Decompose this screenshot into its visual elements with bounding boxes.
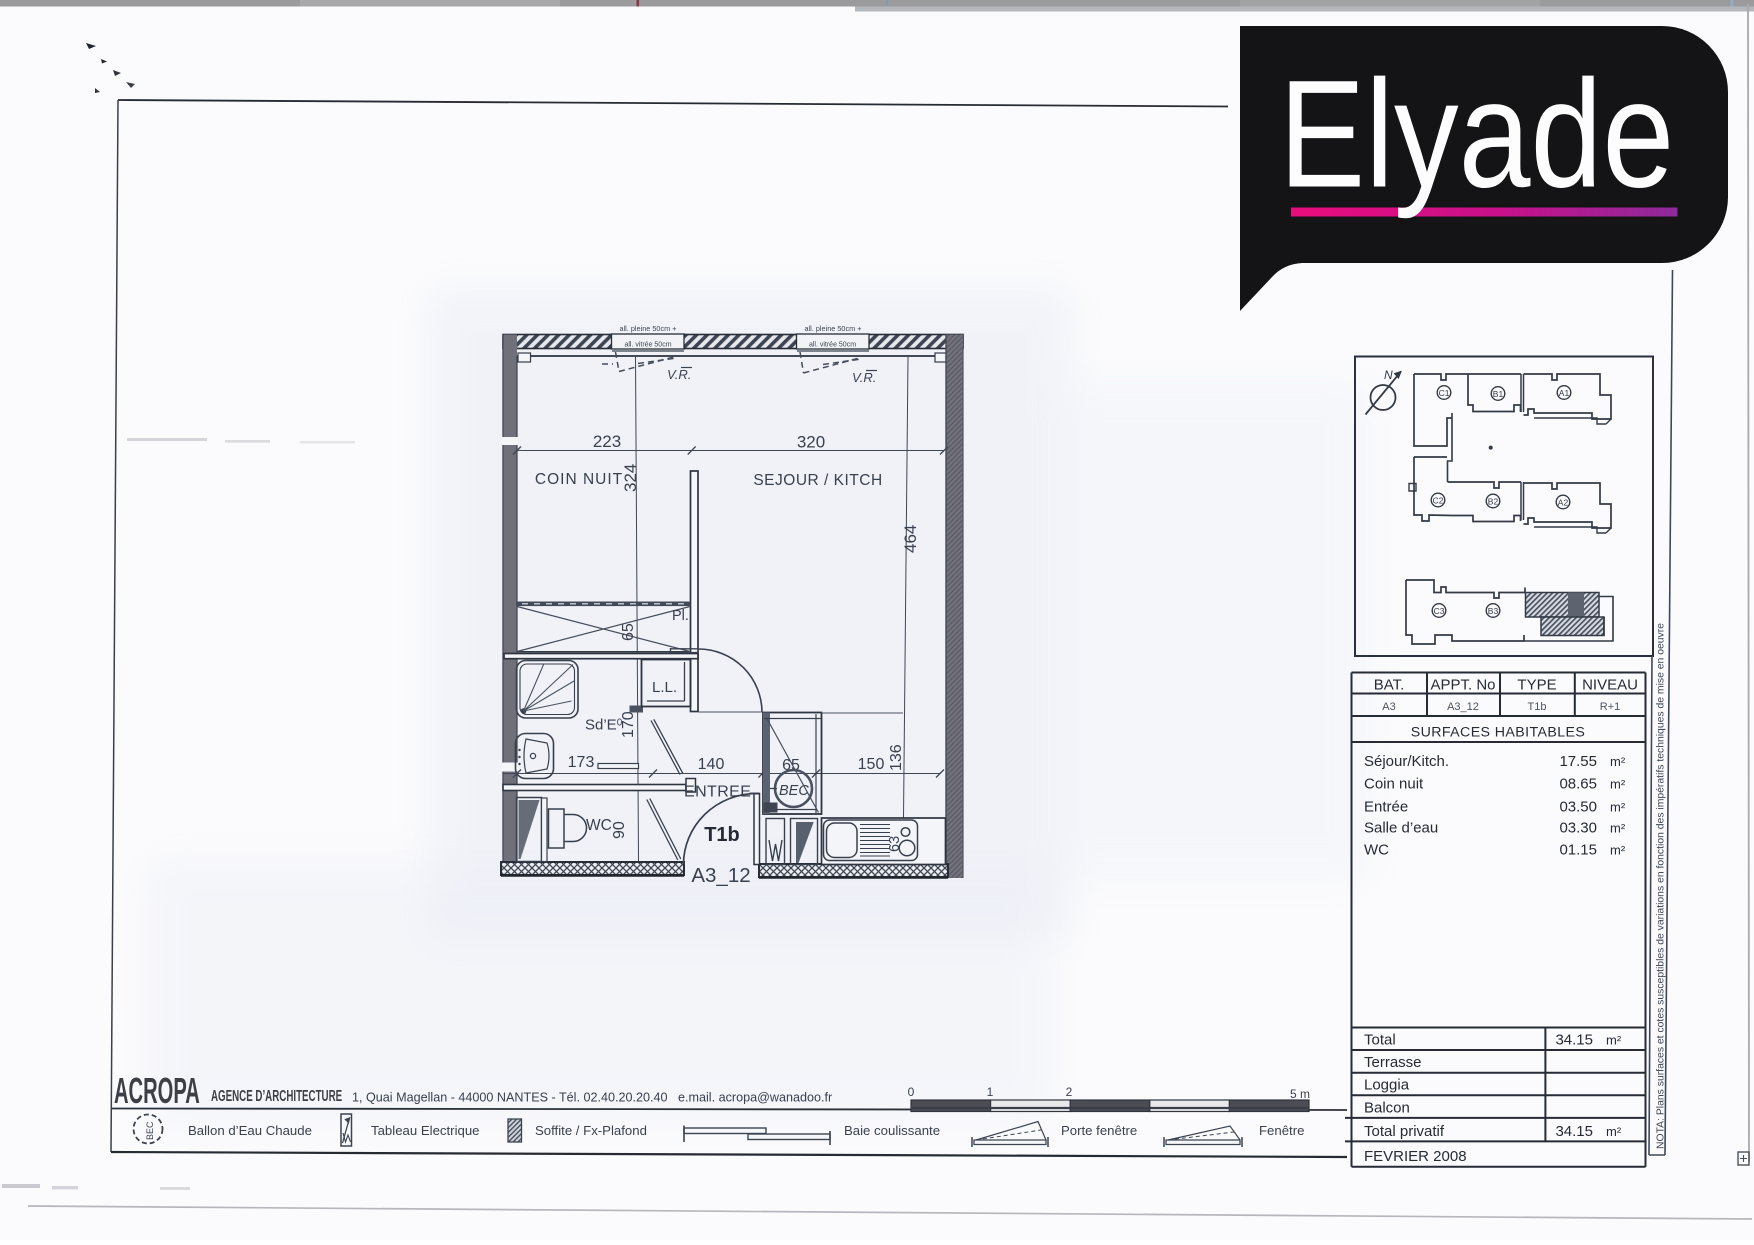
- svg-text:m²: m²: [1606, 1033, 1622, 1048]
- svg-text:320: 320: [797, 433, 825, 452]
- svg-text:34.15: 34.15: [1555, 1032, 1593, 1049]
- svg-text:APPT. No: APPT. No: [1430, 677, 1495, 694]
- svg-text:NOTA: Plans surfaces et cotes: NOTA: Plans surfaces et cotes susceptibl…: [1656, 623, 1667, 1149]
- svg-text:B1: B1: [1493, 389, 1504, 399]
- svg-text:V.R.: V.R.: [852, 370, 876, 385]
- svg-text:m²: m²: [1610, 821, 1626, 836]
- svg-text:136: 136: [888, 744, 905, 771]
- svg-text:Salle d’eau: Salle d’eau: [1364, 820, 1438, 837]
- svg-text:Porte fenêtre: Porte fenêtre: [1061, 1123, 1137, 1138]
- svg-text:B2: B2: [1488, 497, 1499, 507]
- svg-text:03.30: 03.30: [1559, 820, 1597, 837]
- svg-text:V.R.: V.R.: [667, 367, 691, 382]
- svg-text:ENTREE: ENTREE: [684, 784, 751, 801]
- svg-text:m²: m²: [1610, 843, 1626, 858]
- svg-text:FEVRIER 2008: FEVRIER 2008: [1364, 1148, 1467, 1165]
- svg-text:324: 324: [621, 464, 640, 492]
- svg-text:Terrasse: Terrasse: [1364, 1054, 1422, 1071]
- svg-text:1, Quai Magellan - 44000 NANTE: 1, Quai Magellan - 44000 NANTES - Tél. 0…: [352, 1091, 832, 1105]
- svg-text:Tableau Electrique: Tableau Electrique: [371, 1123, 480, 1138]
- svg-text:SEJOUR / KITCH: SEJOUR / KITCH: [753, 472, 882, 489]
- svg-text:08.65: 08.65: [1559, 776, 1597, 793]
- svg-text:5 m: 5 m: [1290, 1087, 1310, 1101]
- svg-text:Total privatif: Total privatif: [1364, 1123, 1445, 1140]
- svg-text:C3: C3: [1434, 606, 1445, 616]
- svg-text:Ballon d’Eau Chaude: Ballon d’Eau Chaude: [188, 1123, 312, 1138]
- svg-text:C1: C1: [1439, 388, 1450, 398]
- svg-text:AGENCE D’ARCHITECTURE: AGENCE D’ARCHITECTURE: [211, 1087, 342, 1105]
- svg-text:0: 0: [908, 1085, 915, 1099]
- svg-text:63: 63: [887, 836, 903, 852]
- svg-text:BAT.: BAT.: [1374, 677, 1405, 694]
- svg-text:R+1: R+1: [1600, 701, 1621, 713]
- svg-text:34.15: 34.15: [1555, 1123, 1593, 1140]
- svg-text:NIVEAU: NIVEAU: [1582, 677, 1638, 694]
- svg-text:N: N: [1384, 368, 1393, 382]
- svg-text:SURFACES HABITABLES: SURFACES HABITABLES: [1411, 725, 1585, 741]
- svg-text:BEC: BEC: [145, 1121, 155, 1140]
- svg-text:A2: A2: [1558, 498, 1569, 508]
- svg-text:Baie coulissante: Baie coulissante: [844, 1123, 940, 1138]
- svg-text:Entrée: Entrée: [1364, 799, 1408, 816]
- svg-text:170: 170: [620, 711, 637, 738]
- svg-text:T1b: T1b: [704, 824, 740, 846]
- svg-text:m²: m²: [1606, 1124, 1622, 1139]
- svg-text:Séjour/Kitch.: Séjour/Kitch.: [1364, 753, 1449, 770]
- svg-text:Pl.: Pl.: [672, 608, 689, 624]
- svg-text:m²: m²: [1610, 800, 1626, 815]
- svg-text:Elyade: Elyade: [1279, 49, 1674, 220]
- svg-text:A3_12: A3_12: [691, 864, 750, 887]
- svg-text:03.50: 03.50: [1559, 799, 1597, 816]
- svg-text:all. vitrée 50cm: all. vitrée 50cm: [809, 342, 856, 349]
- svg-text:all. vitrée 50cm: all. vitrée 50cm: [624, 342, 671, 349]
- svg-text:Fenêtre: Fenêtre: [1259, 1123, 1304, 1138]
- svg-text:01.15: 01.15: [1559, 842, 1597, 859]
- svg-text:TYPE: TYPE: [1517, 677, 1556, 694]
- svg-text:17.55: 17.55: [1559, 753, 1597, 770]
- svg-text:all. pleine 50cm +: all. pleine 50cm +: [620, 324, 677, 333]
- svg-text:m²: m²: [1610, 777, 1626, 792]
- svg-text:T1b: T1b: [1528, 701, 1547, 713]
- svg-text:all. pleine 50cm +: all. pleine 50cm +: [805, 324, 862, 333]
- svg-text:C2: C2: [1433, 496, 1444, 506]
- svg-text:140: 140: [698, 756, 725, 773]
- svg-text:B3: B3: [1488, 606, 1499, 616]
- svg-text:65: 65: [620, 623, 637, 641]
- svg-text:BEC: BEC: [779, 783, 809, 799]
- svg-text:Soffite / Fx-Plafond: Soffite / Fx-Plafond: [535, 1123, 647, 1138]
- svg-text:m²: m²: [1610, 754, 1626, 769]
- svg-text:2: 2: [1066, 1085, 1073, 1099]
- svg-text:Coin nuit: Coin nuit: [1364, 776, 1424, 793]
- svg-text:150: 150: [858, 756, 885, 773]
- svg-text:WC: WC: [586, 817, 612, 834]
- svg-text:COIN NUIT: COIN NUIT: [535, 471, 623, 488]
- svg-text:WC: WC: [1364, 842, 1389, 859]
- svg-text:Loggia: Loggia: [1364, 1077, 1410, 1094]
- svg-text:90: 90: [611, 821, 628, 839]
- svg-text:Total: Total: [1364, 1032, 1396, 1049]
- svg-text:A1: A1: [1559, 388, 1570, 398]
- svg-text:A3_12: A3_12: [1447, 701, 1479, 713]
- svg-text:L.L.: L.L.: [652, 679, 677, 696]
- svg-text:223: 223: [593, 432, 621, 451]
- svg-text:Balcon: Balcon: [1364, 1100, 1410, 1117]
- svg-text:ACROPA: ACROPA: [114, 1072, 200, 1111]
- svg-text:173: 173: [568, 754, 595, 771]
- svg-text:464: 464: [901, 525, 920, 553]
- svg-text:1: 1: [987, 1085, 994, 1099]
- svg-text:A3: A3: [1382, 701, 1395, 713]
